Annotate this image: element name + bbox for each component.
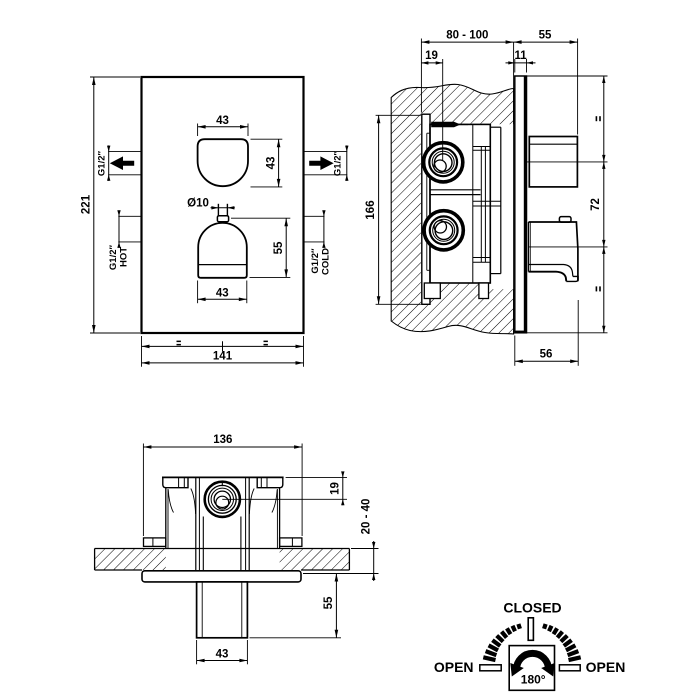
svg-text:G1/2″: G1/2″: [310, 248, 321, 274]
svg-text:HOT: HOT: [119, 247, 130, 267]
svg-text:43: 43: [216, 287, 229, 299]
svg-text:141: 141: [213, 350, 233, 362]
svg-text:G1/2″: G1/2″: [108, 244, 119, 270]
svg-text:55: 55: [273, 241, 285, 254]
svg-text:43: 43: [216, 648, 229, 660]
svg-text:221: 221: [81, 194, 93, 214]
svg-text:43: 43: [266, 157, 278, 170]
svg-text:136: 136: [213, 434, 232, 446]
svg-text:80 - 100: 80 - 100: [446, 29, 488, 41]
svg-text:11: 11: [515, 50, 528, 62]
svg-text:CLOSED: CLOSED: [503, 600, 561, 616]
svg-text:180°: 180°: [521, 673, 546, 687]
svg-text:G1/2″: G1/2″: [333, 150, 344, 176]
svg-text:COLD: COLD: [321, 248, 332, 275]
svg-text:19: 19: [329, 482, 341, 495]
svg-text:72: 72: [590, 198, 602, 211]
svg-text:20 - 40: 20 - 40: [360, 499, 372, 535]
svg-text:55: 55: [539, 29, 552, 41]
svg-text:166: 166: [365, 200, 377, 219]
svg-text:55: 55: [323, 596, 335, 609]
svg-text:G1/2″: G1/2″: [97, 150, 108, 176]
svg-text:19: 19: [425, 50, 438, 62]
svg-text:OPEN: OPEN: [586, 659, 626, 675]
svg-text:56: 56: [540, 349, 553, 361]
svg-text:Ø10: Ø10: [187, 198, 209, 210]
svg-text:OPEN: OPEN: [434, 659, 474, 675]
svg-text:43: 43: [216, 115, 229, 127]
